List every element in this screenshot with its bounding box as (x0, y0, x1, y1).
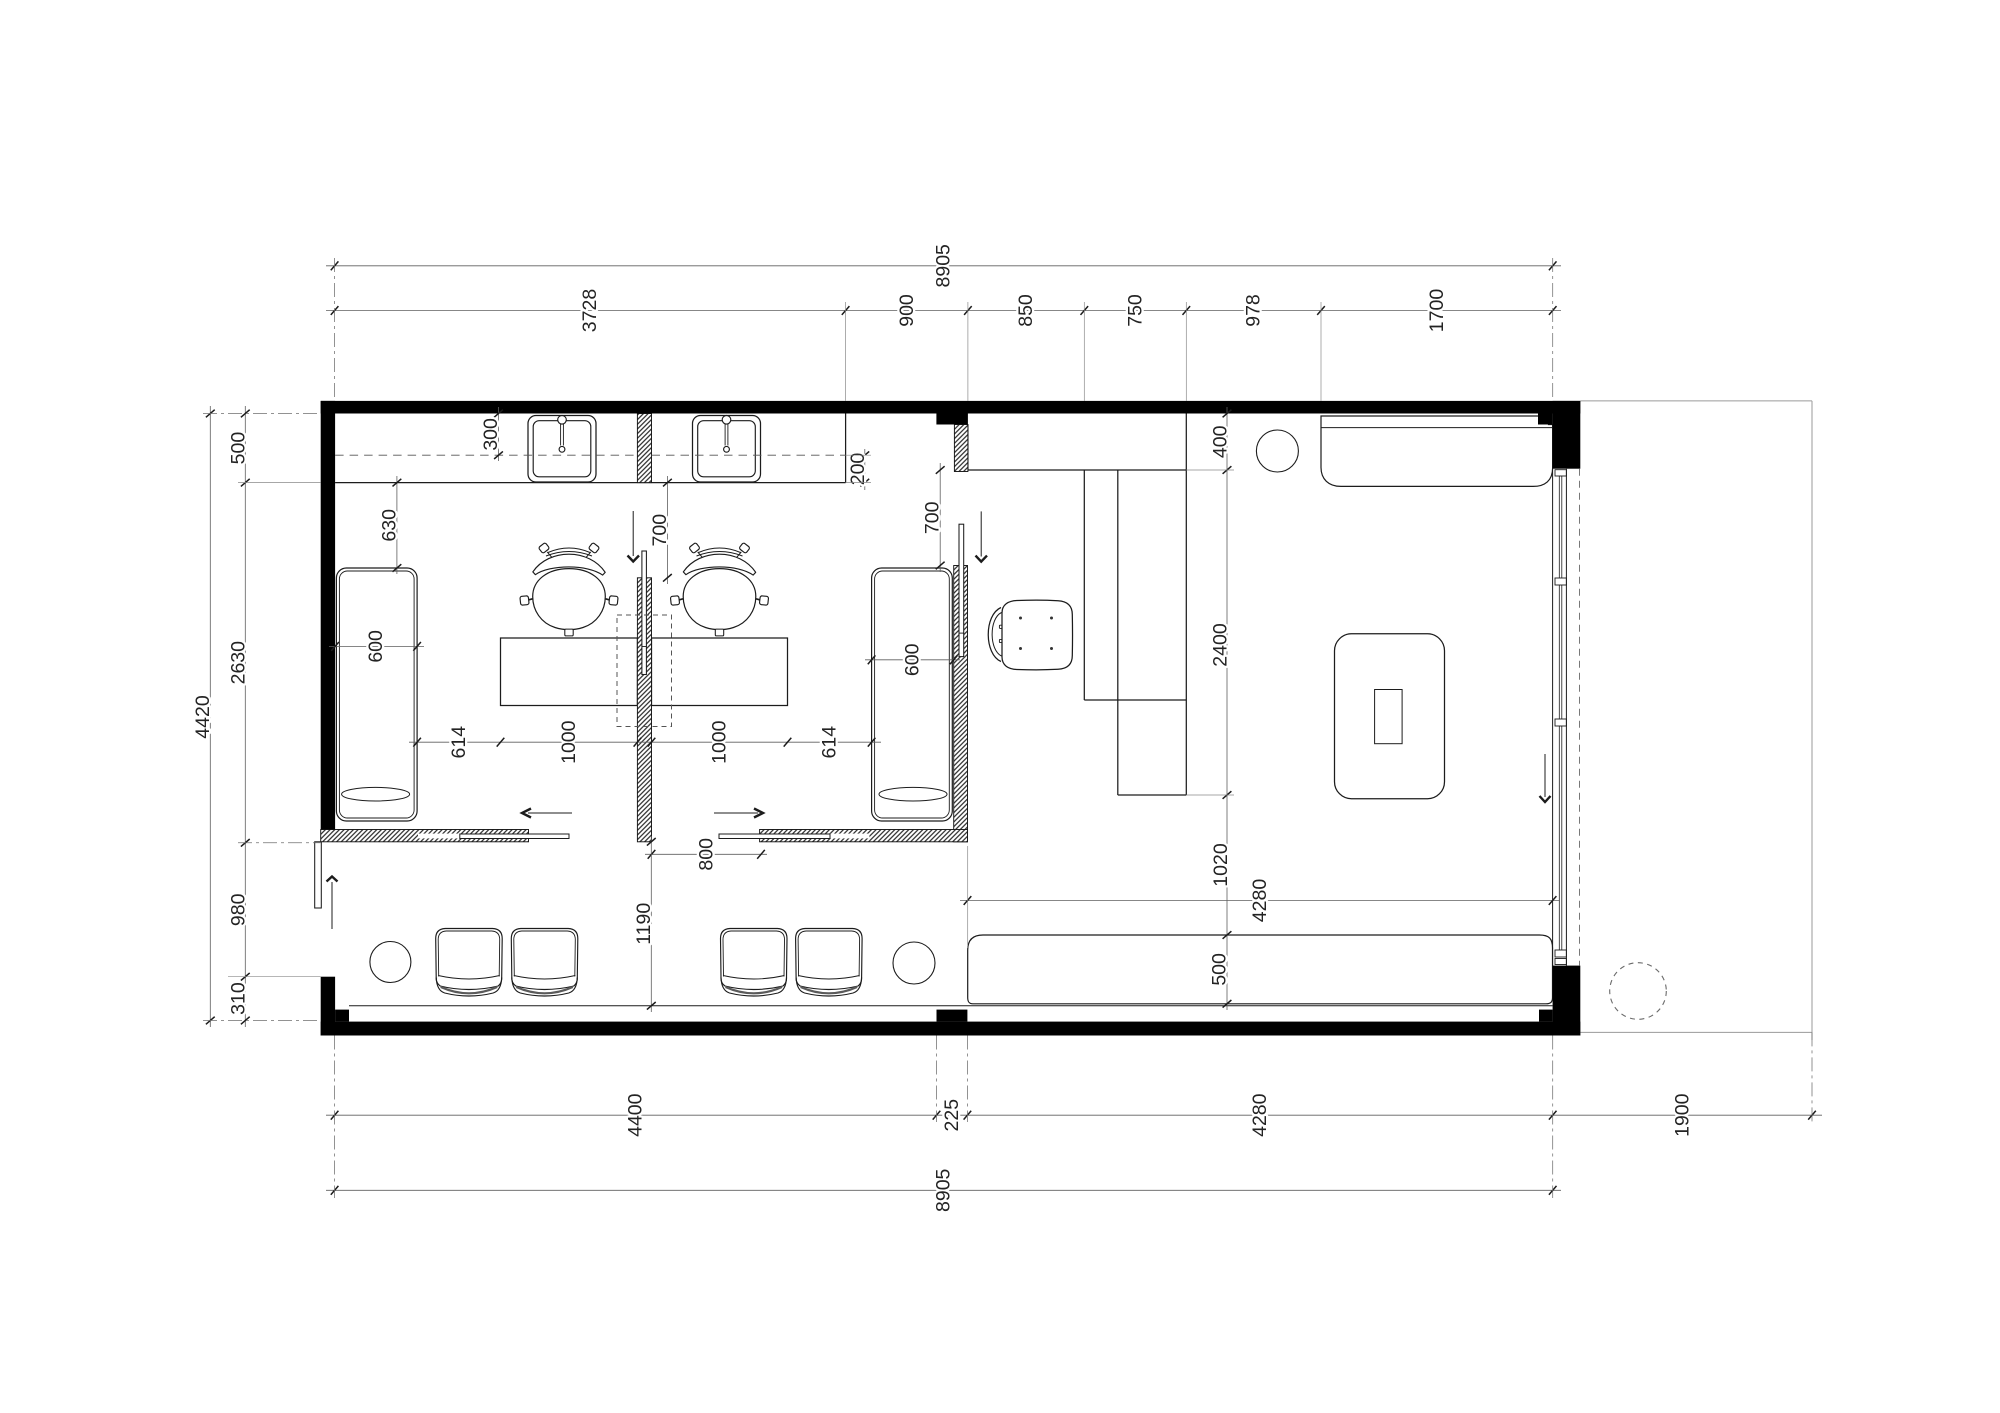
svg-text:630: 630 (378, 509, 400, 542)
svg-text:225: 225 (941, 1099, 963, 1132)
svg-text:4400: 4400 (625, 1093, 647, 1137)
svg-text:978: 978 (1243, 294, 1265, 327)
svg-text:8905: 8905 (933, 244, 955, 288)
svg-text:614: 614 (448, 726, 470, 759)
svg-text:400: 400 (1209, 425, 1231, 458)
svg-text:980: 980 (227, 893, 249, 926)
svg-text:1020: 1020 (1210, 843, 1232, 887)
svg-text:900: 900 (896, 294, 918, 327)
svg-text:3728: 3728 (579, 289, 601, 332)
svg-text:2400: 2400 (1209, 623, 1231, 667)
svg-text:850: 850 (1015, 294, 1037, 327)
svg-text:700: 700 (922, 501, 944, 534)
svg-text:1000: 1000 (709, 720, 731, 764)
svg-text:700: 700 (649, 514, 671, 547)
svg-text:310: 310 (227, 982, 249, 1015)
svg-text:500: 500 (227, 432, 249, 465)
svg-text:800: 800 (695, 838, 717, 871)
svg-text:600: 600 (365, 630, 387, 663)
svg-text:4280: 4280 (1249, 1093, 1271, 1137)
svg-text:300: 300 (480, 418, 502, 451)
svg-text:500: 500 (1208, 953, 1230, 986)
svg-text:750: 750 (1124, 294, 1146, 327)
svg-text:2630: 2630 (227, 641, 249, 685)
svg-text:1000: 1000 (558, 720, 580, 764)
svg-text:1190: 1190 (633, 903, 655, 945)
svg-text:1900: 1900 (1671, 1093, 1693, 1137)
svg-text:4420: 4420 (192, 695, 214, 739)
svg-text:614: 614 (819, 726, 841, 759)
svg-text:8905: 8905 (933, 1168, 955, 1212)
svg-text:1700: 1700 (1426, 289, 1448, 333)
svg-text:4280: 4280 (1249, 879, 1271, 923)
svg-text:600: 600 (902, 643, 924, 676)
svg-text:200: 200 (847, 453, 869, 486)
